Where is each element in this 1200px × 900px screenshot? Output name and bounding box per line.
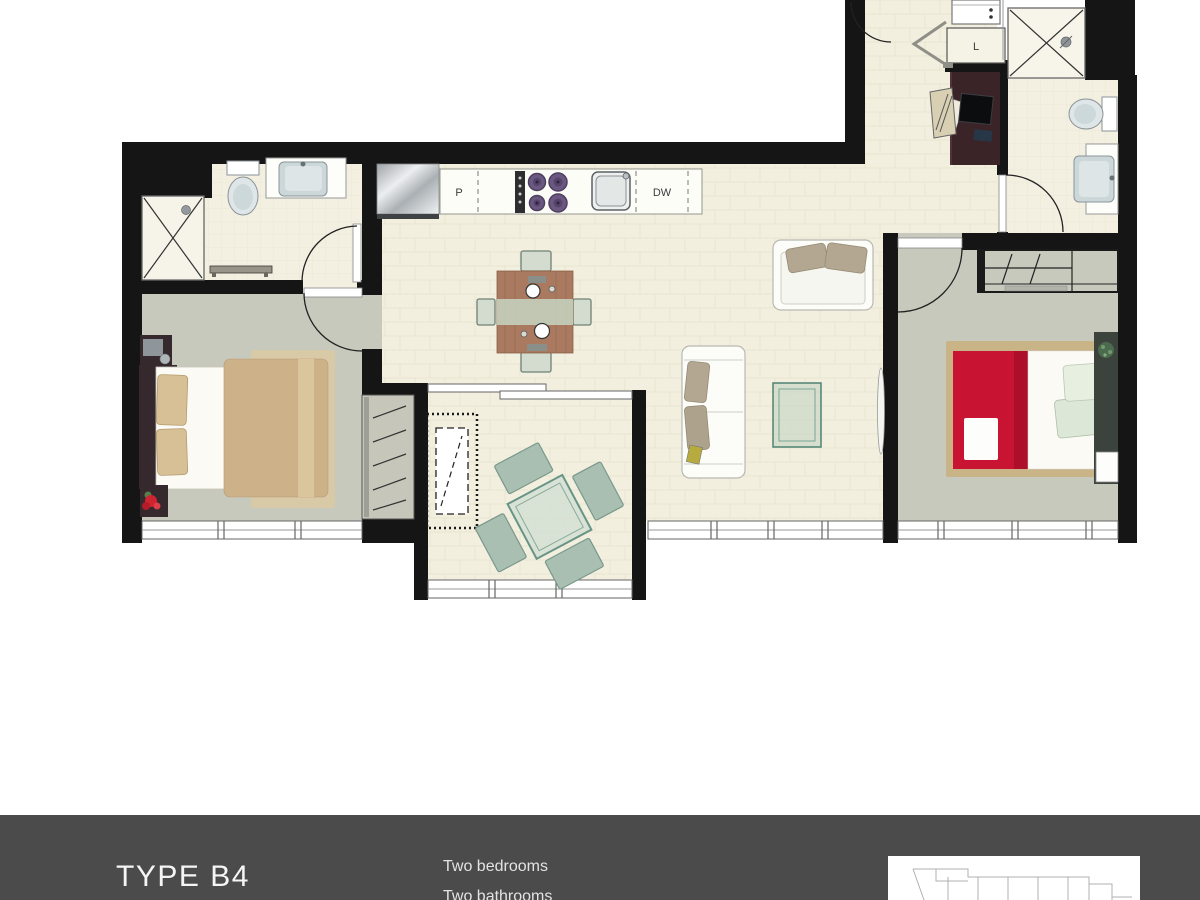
dishwasher-label: DW: [653, 187, 672, 199]
dining-chair: [521, 352, 551, 372]
place-setting-icon: [526, 284, 540, 298]
footer-bar: TYPE B4 Two bedrooms Two bathrooms: [0, 815, 1200, 900]
living-window: [648, 521, 883, 539]
nightstand: [140, 335, 172, 365]
linen-cupboard: L: [947, 28, 1005, 63]
shower: [1008, 8, 1085, 78]
dining-chair: [521, 251, 551, 271]
desk-chair: [930, 88, 956, 138]
bed-queen-red: [953, 332, 1118, 484]
air-conditioner-unit: [436, 428, 468, 514]
dining-chair: [573, 299, 591, 325]
balcony-balustrade: [428, 580, 632, 598]
faucet-icon: [623, 173, 629, 179]
shower-head-icon: [182, 206, 191, 215]
nightstand: [1096, 452, 1118, 482]
toilet: [1069, 97, 1117, 131]
bedroom2-window: [898, 521, 1118, 539]
bedroom1-window: [142, 521, 362, 539]
feature-bedrooms: Two bedrooms: [443, 858, 548, 875]
table-runner: [497, 299, 573, 325]
shower: [142, 196, 204, 280]
linen-label: L: [973, 41, 979, 53]
floorplan-page: P DW: [0, 0, 1200, 900]
plant-icon: [1098, 342, 1114, 358]
wall-mirror: [878, 368, 885, 454]
feature-bathrooms: Two bathrooms: [443, 888, 552, 900]
kitchen-sink: [592, 172, 630, 210]
floorplan-drawing: P DW: [0, 0, 1200, 900]
dining-chair: [477, 299, 495, 325]
dining-table: [497, 271, 573, 353]
sofa: [682, 346, 745, 478]
fridge: [377, 164, 439, 219]
kitchen: P DW: [377, 164, 702, 219]
key-plan: [888, 856, 1140, 900]
vanity-basin: [266, 158, 346, 198]
toilet: [227, 161, 259, 215]
pantry-label: P: [455, 187, 462, 199]
washing-machine: [952, 0, 1000, 24]
bed-queen-tan: [139, 359, 328, 497]
armchair: [773, 240, 873, 310]
lamp-icon: [160, 354, 170, 364]
nightstand-flowers: [140, 485, 168, 517]
coffee-table: [773, 383, 821, 447]
place-setting-icon: [535, 324, 550, 339]
computer-monitor: [959, 93, 994, 124]
keyboard: [973, 129, 992, 142]
plan-type-title: TYPE B4: [116, 860, 250, 893]
wardrobe-1: [362, 395, 414, 519]
